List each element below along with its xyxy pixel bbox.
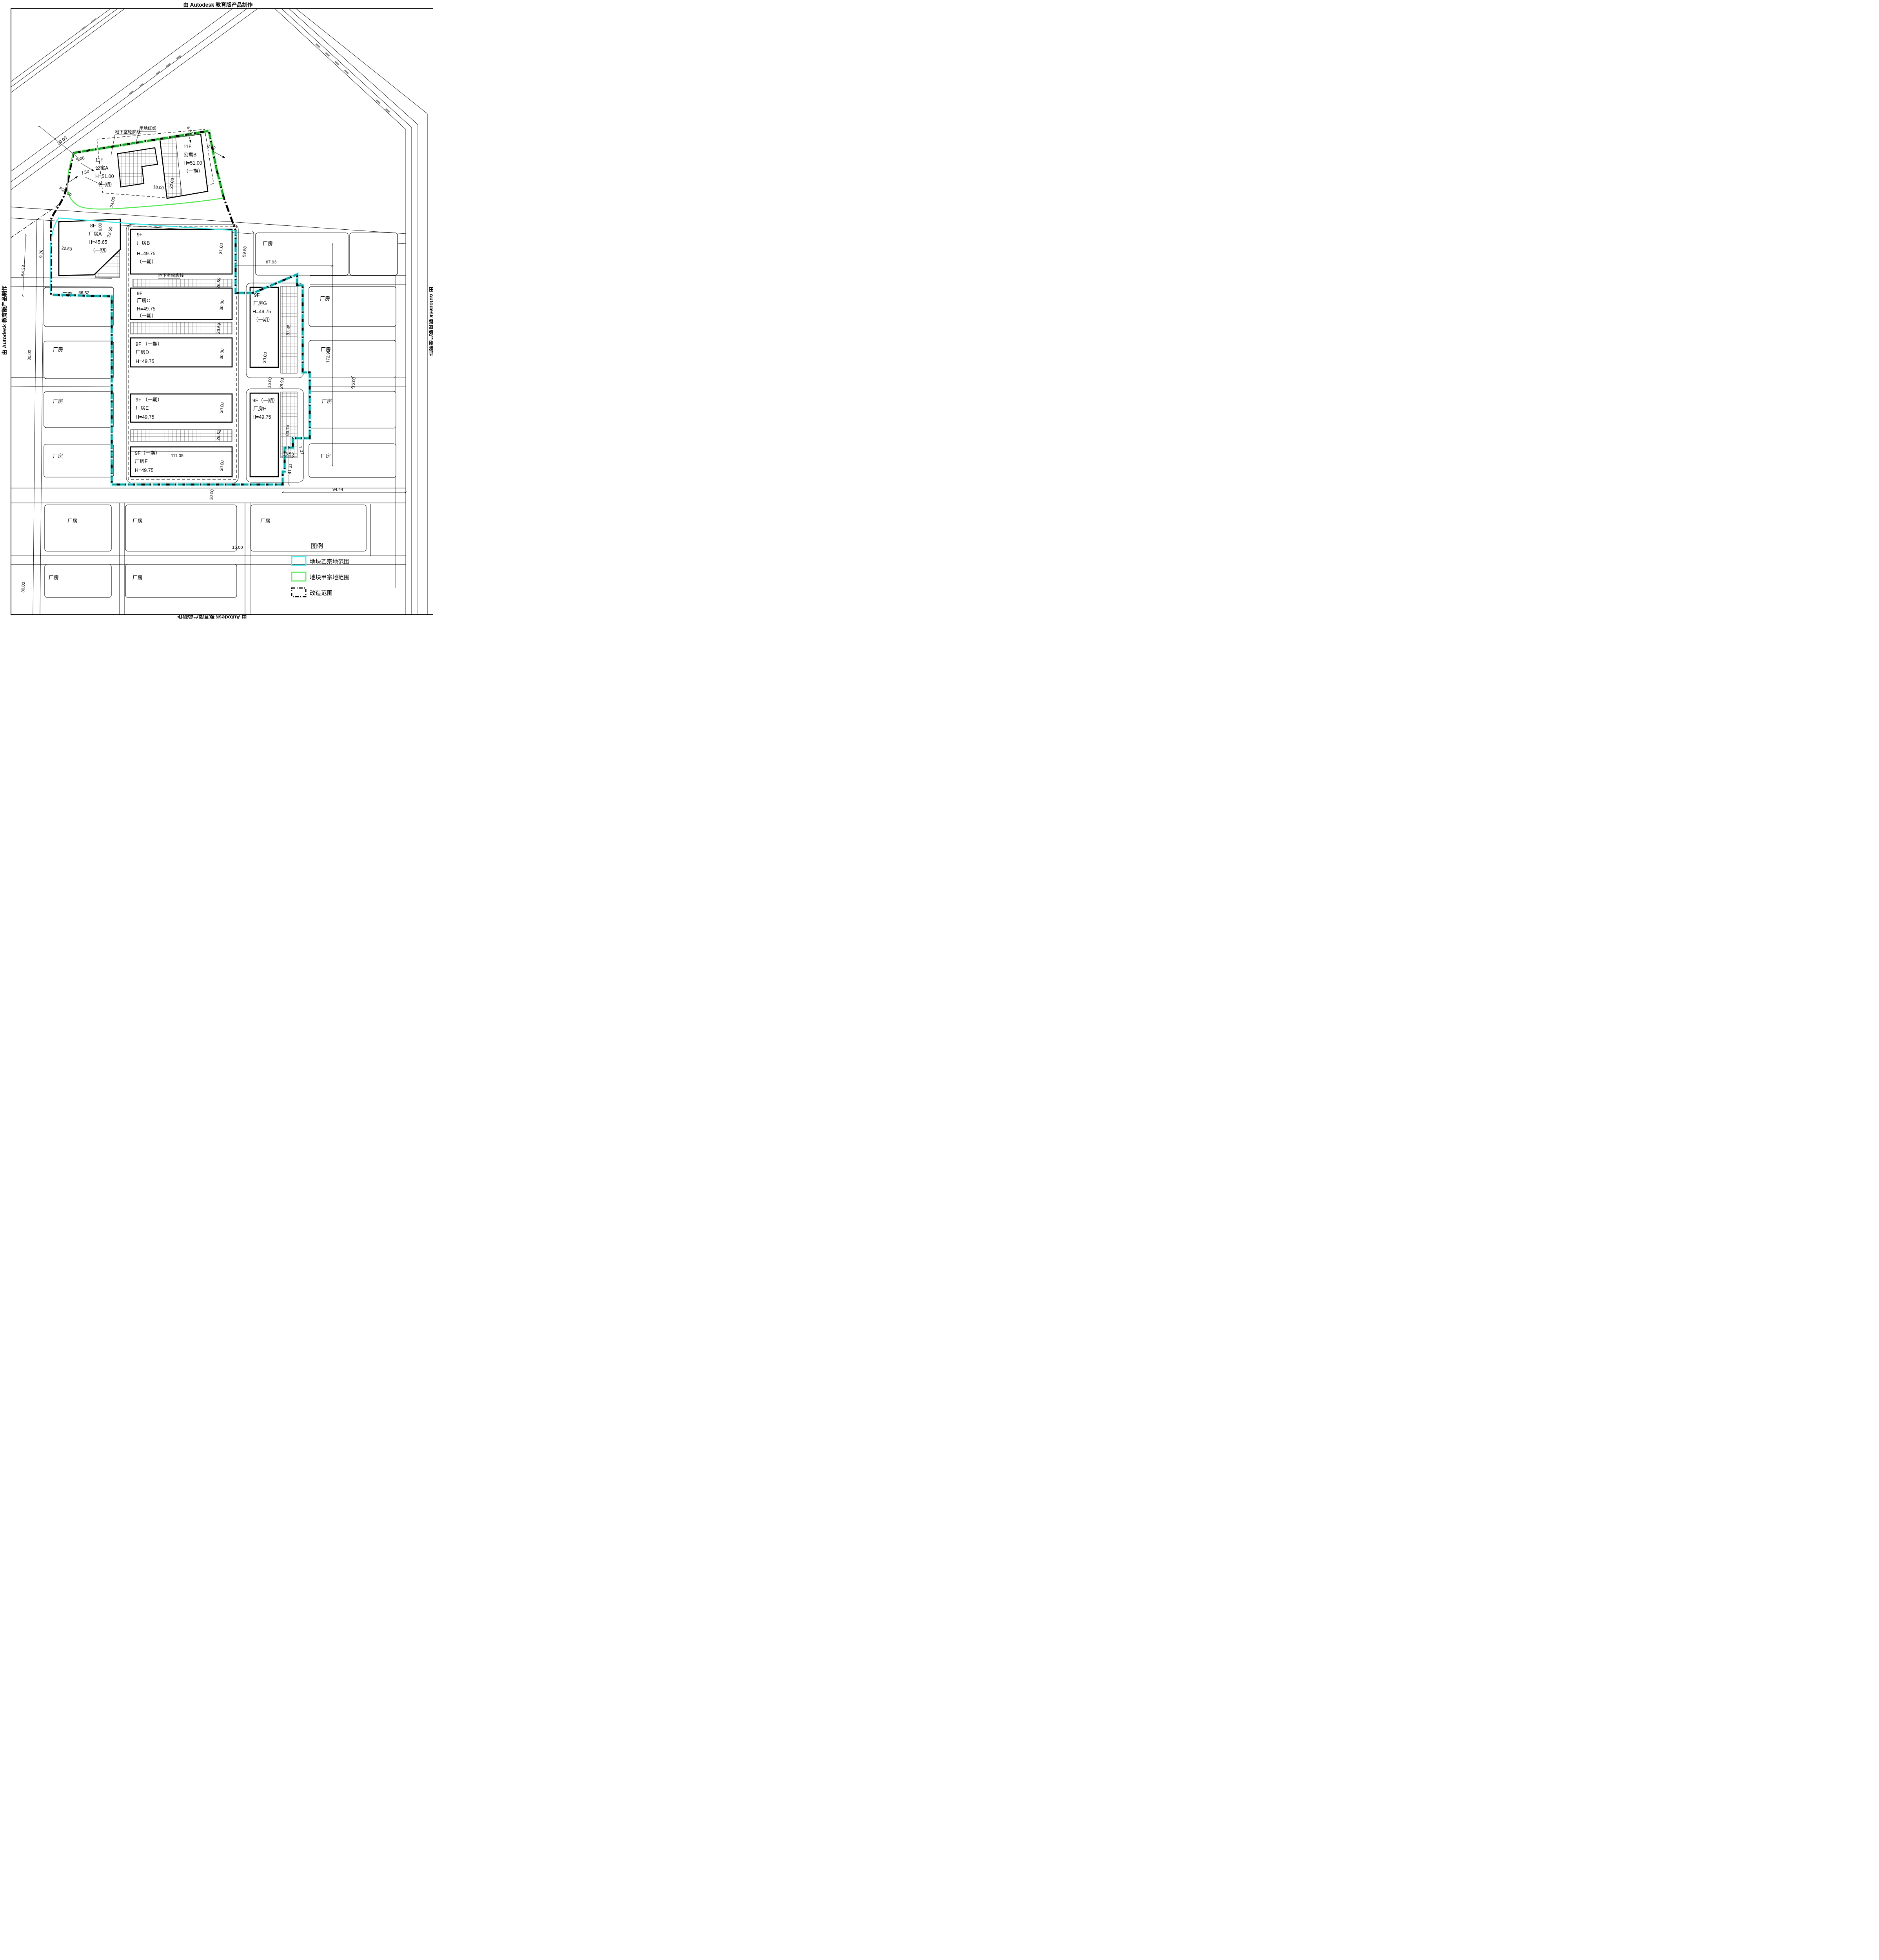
label-line: H=45.65 (89, 240, 107, 245)
dim-label: 67.93 (266, 260, 277, 265)
label-line: 9F （一期） (136, 341, 162, 347)
dim-label: 172.96 (326, 350, 331, 363)
label-line: （一期） (183, 169, 203, 174)
legend-label: 改造范围 (310, 590, 332, 597)
label-line: 厂房F (135, 458, 148, 464)
factory-label: 厂房 (320, 296, 330, 301)
factory-label: 厂房 (260, 518, 271, 524)
building-factory-h (250, 393, 278, 477)
label-line: 厂房H (253, 406, 267, 412)
dim-label: 15.53 (283, 452, 294, 457)
label-line: 厂房E (136, 405, 149, 411)
road-lane-marking (129, 84, 143, 94)
factory-outline (45, 505, 111, 551)
road-line (296, 9, 427, 114)
factory-outline (45, 564, 111, 597)
building-apartment-a (118, 148, 158, 187)
label-line: H=51.00 (183, 160, 202, 166)
factory-outline (309, 444, 396, 477)
factory-label: 厂房 (49, 575, 59, 581)
road-line (11, 9, 118, 87)
factory-label: 厂房 (133, 518, 143, 524)
legend-label: 地块甲宗地范围 (310, 574, 350, 581)
factory-label: 厂房 (263, 241, 273, 247)
label-line: 公寓B (183, 152, 196, 158)
factory-label: 厂房 (133, 575, 143, 581)
factory-label: 厂房 (53, 453, 63, 459)
dim-label: 30.00 (21, 582, 26, 593)
callout-basement-outline: 地下室轮廓线 (158, 272, 184, 278)
label-line: 公寓A (95, 165, 109, 171)
label-line: （一期） (95, 182, 115, 187)
road-lane-marking (316, 44, 354, 78)
label-line: 厂房B (137, 240, 150, 246)
label-line: H=49.75 (252, 309, 271, 314)
dim-label: 30.00 (27, 350, 32, 361)
label-line: 9F（一期） (135, 450, 160, 456)
label-line: H=49.75 (252, 414, 271, 420)
dim-label: 24.00 (109, 196, 116, 208)
factory-label: 厂房 (53, 398, 63, 404)
road-line (289, 9, 418, 125)
road-lane-marking (156, 53, 184, 74)
watermark-bottom: 由 Autodesk 教育版产品制作 (177, 614, 247, 619)
road-line (33, 219, 37, 615)
dim-label: 111.05 (171, 454, 183, 458)
road-lane-marking (82, 19, 96, 30)
factory-label: 厂房 (322, 398, 332, 404)
watermark-right: 由 Autodesk 教育版产品制作 (428, 287, 433, 356)
dim-label: 7.27 (298, 446, 305, 455)
dim-label: 9.76 (39, 249, 44, 258)
dim-label: 15.00 (232, 545, 243, 550)
callout-red-line: 用地红线 (139, 125, 156, 131)
road-line (40, 220, 44, 615)
factory-outline (44, 444, 114, 477)
dim-label: 15.00 (351, 377, 357, 388)
legend-swatch-parcel-b (292, 557, 306, 565)
dim-label: R20.00 (58, 186, 72, 197)
dim-label: 15.00 (267, 377, 273, 388)
label-line: （一期） (137, 313, 156, 319)
label-line: 厂房A (89, 231, 102, 237)
dim-label: 94.44 (332, 487, 343, 492)
label-line: 11F (95, 157, 103, 163)
label-line: 厂房G (253, 300, 267, 306)
watermark-left: 由 Autodesk 教育版产品制作 (1, 285, 7, 355)
dim-label: 7.50 (80, 169, 90, 176)
site-plan-canvas: 厂房 厂房 厂房 厂房 厂房 厂房 厂房 厂房 厂房 厂房 厂房 厂房 厂房 厂… (0, 0, 433, 619)
dim-label: 30.00 (209, 489, 215, 501)
label-line: H=49.75 (136, 414, 154, 420)
factory-outline (309, 287, 396, 327)
road-lane-marking (376, 100, 395, 118)
label-line: （一期） (137, 259, 156, 265)
dim-label: 59.88 (242, 246, 248, 258)
dim-label: 66.52 (78, 290, 89, 296)
legend-swatch-renovation (292, 588, 306, 597)
callout-basement-outline: 地下室轮廓线 (115, 129, 141, 134)
dim-label: 6.00 (98, 223, 103, 231)
label-line: 9F (137, 291, 143, 296)
legend-title: 图例 (311, 543, 323, 550)
factory-outline (125, 505, 237, 551)
road-centerline-dashdot (11, 205, 59, 238)
label-line: 8F (90, 223, 96, 229)
dim-label: 28.93 (279, 378, 285, 389)
factory-outline (44, 392, 114, 428)
dim-label: 41.31 (287, 463, 293, 475)
label-line: 9F （一期） (136, 397, 162, 403)
label-line: 9F（一期） (252, 398, 278, 403)
factory-outline (256, 233, 348, 275)
label-line: 11F (183, 144, 192, 149)
factory-label: 厂房 (67, 518, 78, 524)
legend-swatch-parcel-a (292, 572, 306, 581)
label-line: （一期） (253, 317, 273, 323)
label-line: 厂房C (137, 298, 150, 303)
factory-outline (350, 233, 398, 275)
road-line (11, 386, 112, 387)
road-line (11, 9, 125, 93)
road-line (281, 9, 412, 127)
label-line: （一期） (90, 248, 110, 253)
label-line: H=49.75 (136, 359, 154, 364)
label-apartment-a: 11F 公寓A H=51.00 （一期） (95, 157, 115, 187)
label-line: H=49.75 (135, 468, 154, 473)
factory-outline (309, 340, 396, 378)
label-line: 厂房D (136, 349, 149, 355)
dim-label: 54.33 (21, 265, 26, 276)
factory-outline (309, 391, 396, 428)
factory-label: 厂房 (321, 453, 331, 459)
factory-label: 厂房 (53, 347, 63, 352)
label-line: H=49.75 (137, 251, 156, 256)
label-line: H=49.75 (137, 306, 156, 312)
road-line (275, 9, 406, 129)
factory-outline (251, 505, 366, 551)
dim-label: 18.00 (153, 185, 164, 191)
label-line: H=51.00 (95, 174, 114, 179)
factory-outline (125, 564, 237, 597)
dim-label: 5.00 (76, 156, 85, 163)
watermark-top: 由 Autodesk 教育版产品制作 (183, 2, 253, 8)
road-line (11, 286, 112, 287)
label-line: 9F (137, 232, 143, 238)
legend-label: 地块乙宗地范围 (310, 559, 350, 565)
label-line: 9F (254, 292, 260, 298)
